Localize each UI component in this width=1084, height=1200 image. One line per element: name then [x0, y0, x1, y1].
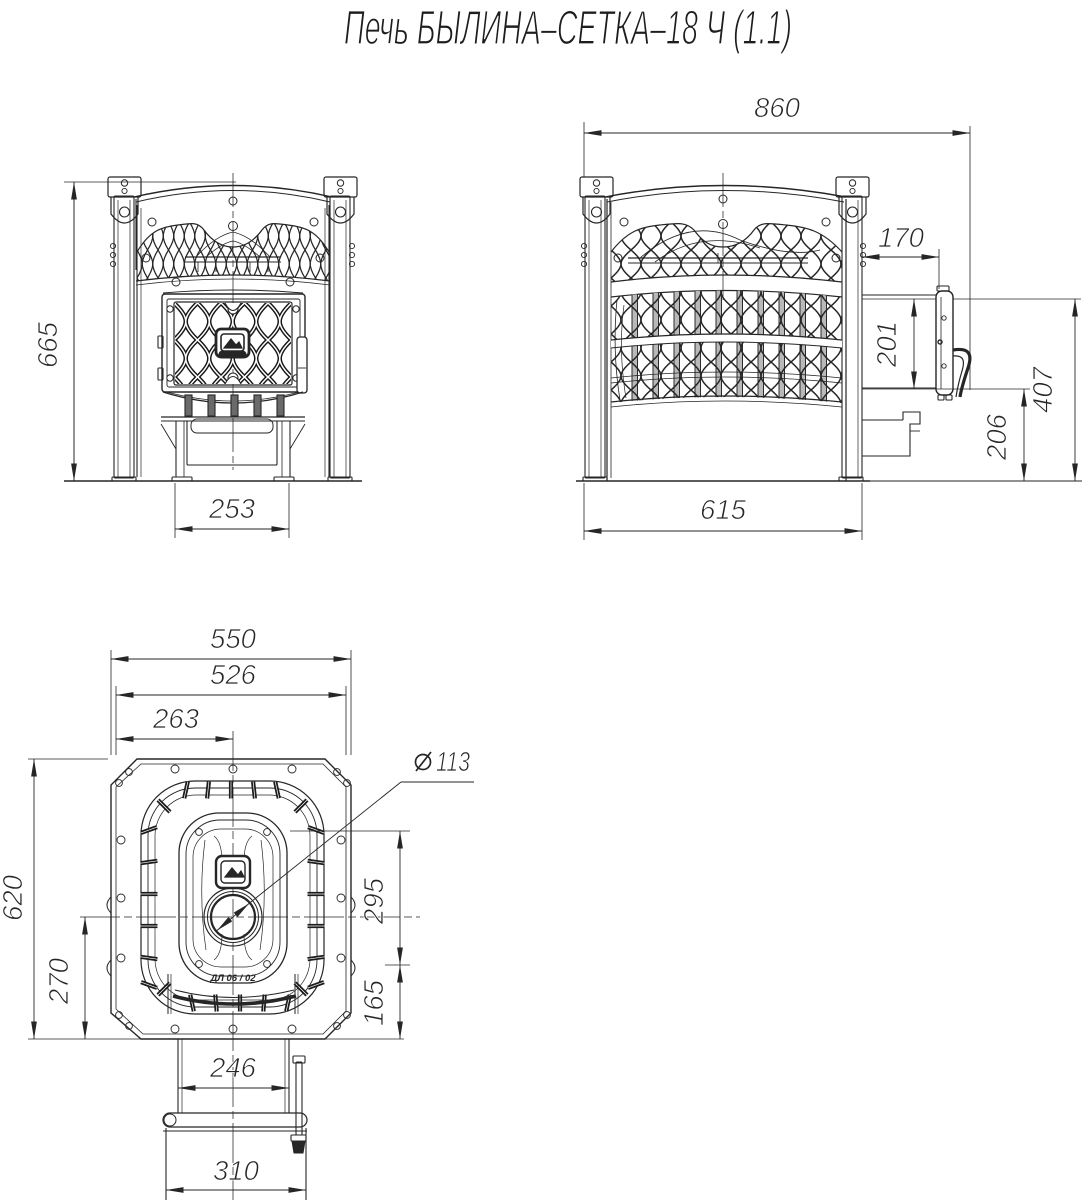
svg-text:Печь БЫЛИНА–СЕТКА–18 Ч (1.1): Печь БЫЛИНА–СЕТКА–18 Ч (1.1) — [344, 2, 792, 55]
svg-text:206: 206 — [981, 414, 1012, 461]
svg-text:310: 310 — [213, 1155, 259, 1186]
svg-text:113: 113 — [436, 746, 470, 777]
svg-text:665: 665 — [32, 322, 63, 368]
svg-text:165: 165 — [358, 980, 389, 1026]
svg-text:550: 550 — [210, 623, 256, 654]
svg-text:295: 295 — [358, 878, 389, 925]
svg-text:407: 407 — [1027, 366, 1058, 413]
svg-text:526: 526 — [210, 659, 256, 690]
svg-text:263: 263 — [152, 703, 199, 734]
svg-text:615: 615 — [700, 494, 746, 525]
svg-text:860: 860 — [754, 92, 800, 123]
svg-text:253: 253 — [208, 493, 255, 524]
svg-text:ДЛ 06 / 02: ДЛ 06 / 02 — [209, 973, 256, 984]
svg-text:170: 170 — [878, 222, 924, 253]
svg-text:201: 201 — [871, 321, 902, 368]
svg-text:246: 246 — [209, 1052, 256, 1083]
svg-text:270: 270 — [43, 958, 74, 1005]
svg-text:620: 620 — [0, 875, 28, 921]
